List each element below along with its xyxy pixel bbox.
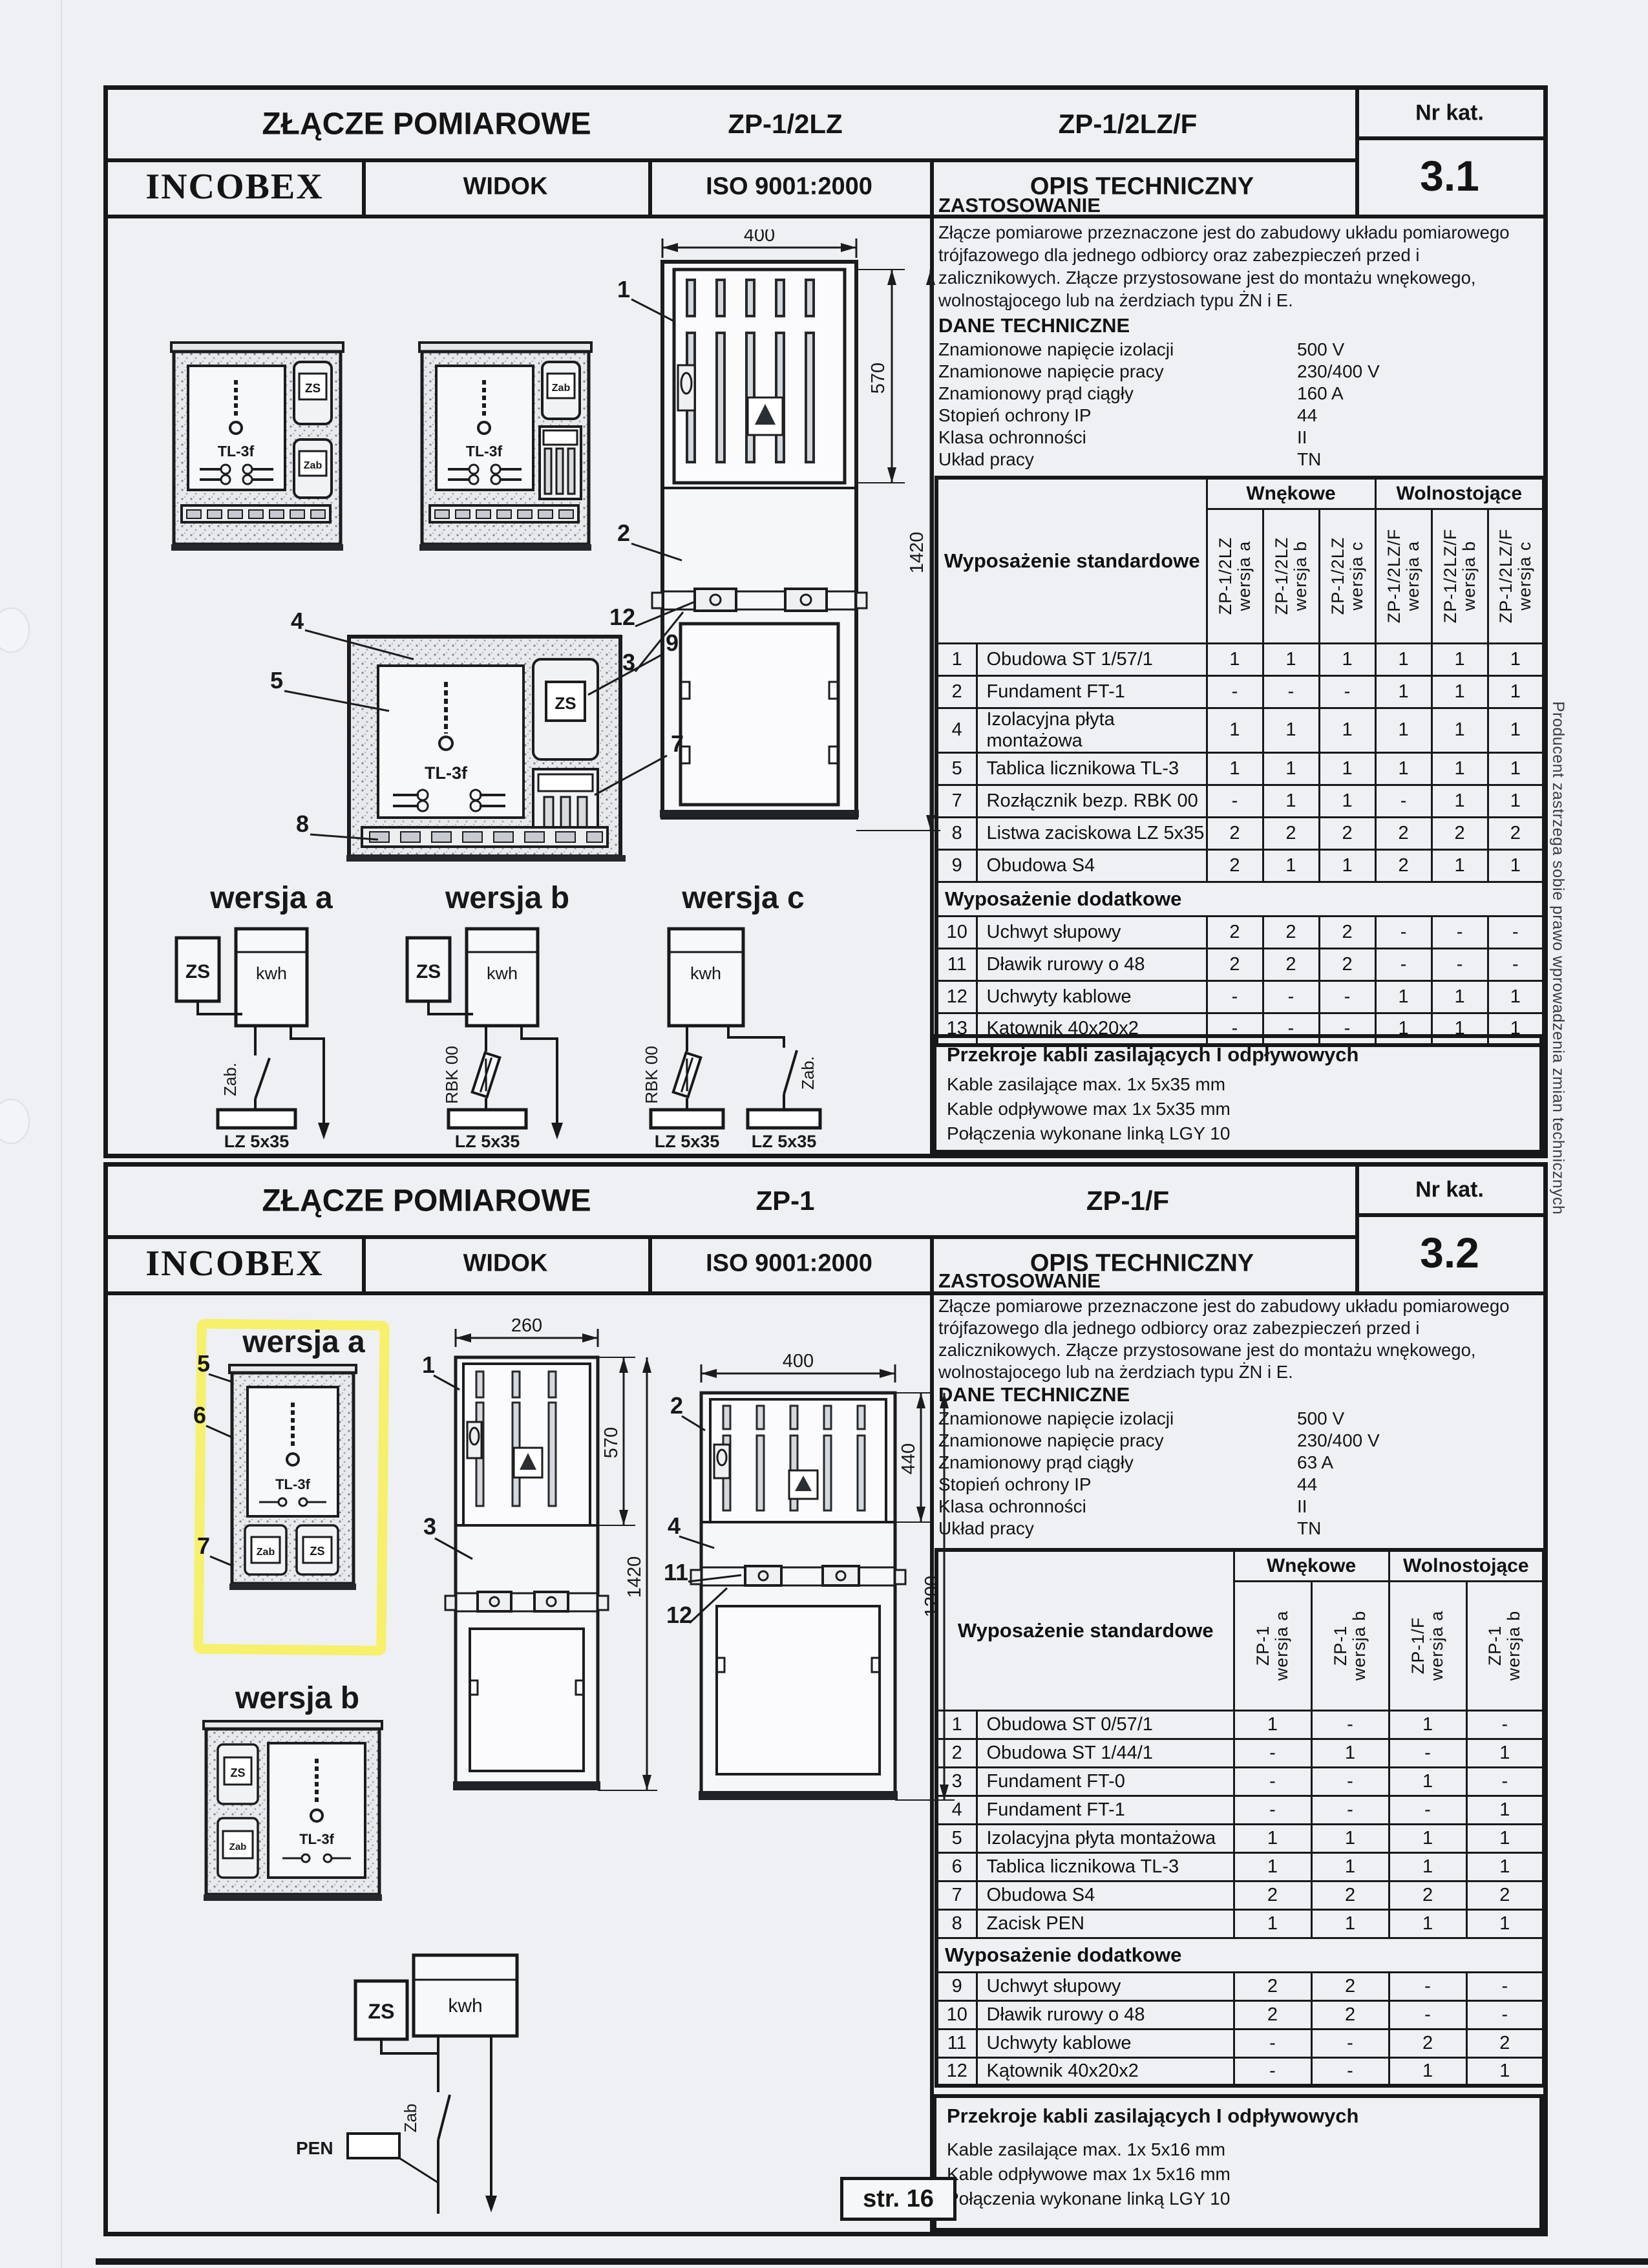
table-cell: 1 [1431, 643, 1488, 675]
table-cell: 2 [1375, 817, 1431, 849]
table-cell: 44 [1297, 405, 1539, 427]
table-cell: 2 [1466, 1881, 1544, 1909]
table-cell: Układ pracy [938, 1518, 1297, 1540]
table-cell: 1 [1488, 675, 1544, 708]
table-cell: 1 [1431, 675, 1488, 708]
table-cell: 2 [1319, 916, 1375, 948]
table-cell: 1 [1207, 708, 1263, 752]
callout-12: 12 [666, 1602, 692, 1628]
table-cell: 1 [1466, 2057, 1544, 2086]
callout-2: 2 [670, 1392, 683, 1419]
table-cell: Obudowa ST 1/44/1 [977, 1739, 1234, 1767]
table-cell: Izolacyjna płyta montażowa [977, 708, 1207, 752]
table-cell: Listwa zaciskowa LZ 5x35 [977, 817, 1207, 849]
table-cell: 9 [936, 1972, 977, 2000]
table-cell: - [1319, 980, 1375, 1013]
table-row: Znamionowe napięcie izolacji500 V [938, 339, 1539, 361]
callout-3: 3 [423, 1513, 436, 1540]
callout-9: 9 [666, 630, 679, 656]
zs-label: ZS [416, 961, 441, 982]
table-row: 1Obudowa ST 0/57/11-1- [936, 1710, 1544, 1739]
zs-label: ZS [310, 1545, 324, 1558]
table-cell: Dławik rurowy o 48 [977, 948, 1207, 980]
table-cell: 2 [1207, 817, 1263, 849]
table-cell: 11 [936, 2029, 977, 2057]
bar-label: LZ 5x35 [224, 1132, 290, 1151]
tl3f-label: TL-3f [299, 1831, 334, 1847]
cables-line: Połączenia wykonane linką LGY 10 [947, 1123, 1230, 1144]
scan-crease [61, 0, 62, 2268]
table-cell: Fundament FT-1 [977, 1796, 1234, 1824]
schematic-zp1-32: kwh ZS Zab PEN [278, 1942, 562, 2233]
table-row: Układ pracyTN [938, 449, 1539, 471]
table-cell: 1 [1431, 752, 1488, 785]
model-zp12lzf: ZP-1/2LZ/F [1059, 109, 1198, 140]
device-label: RBK 00 [642, 1046, 661, 1104]
page-title-32: ZŁĄCZE POMIAROWE [262, 1183, 591, 1219]
col-header: ZP-1/2LZwersja c [1319, 509, 1375, 643]
schematic-wersja-a-31: wersja a ZS kwh Zab. LZ 5x35 [158, 876, 385, 1154]
table-cell: - [1311, 2029, 1389, 2057]
model-zp1f: ZP-1/F [1086, 1185, 1169, 1216]
cables-line: Kable zasilające max. 1x 5x16 mm [947, 2139, 1225, 2160]
table-cell: Znamionowe napięcie pracy [938, 1430, 1297, 1452]
zab-label: Zab [304, 460, 322, 471]
zs-label: ZS [305, 382, 321, 396]
table-cell: 1 [1207, 643, 1263, 675]
table-title-cell: Wyposażenie standardowe [936, 478, 1207, 643]
table-cell: 2 [1389, 2029, 1466, 2057]
table-cell: 2 [1311, 1972, 1389, 2000]
dim-440: 440 [898, 1443, 919, 1474]
table-cell: 1 [1263, 752, 1319, 785]
tl3f-label: TL-3f [275, 1476, 310, 1492]
table-cell: 1 [1389, 1909, 1466, 1938]
cables-line: Kable odpływowe max 1x 5x35 mm [947, 1099, 1231, 1119]
table-cell: 1 [1311, 1852, 1389, 1881]
page-number: str. 16 [863, 2185, 934, 2213]
table-cell: TN [1297, 449, 1539, 471]
table-row: Znamionowe napięcie pracy230/400 V [938, 361, 1539, 383]
wersja-b-cabinet-32: wersja b ZS Zab TL-3f [194, 1677, 401, 1913]
table-cell: - [1375, 948, 1431, 980]
table-row: 9Uchwyt słupowy22-- [936, 1972, 1544, 2000]
punch-hole [0, 1099, 30, 1144]
table-cell: - [1488, 916, 1544, 948]
group-header-row: Wyposażenie standardowe Wnękowe Wolnosto… [936, 478, 1544, 509]
table-cell: Izolacyjna płyta montażowa [977, 1824, 1234, 1852]
table-cell: 7 [936, 1881, 977, 1909]
table-cell: 1 [1234, 1852, 1311, 1881]
equipment-table-32: Wyposażenie standardowe Wnękowe Wolnosto… [935, 1548, 1546, 2088]
table-row: 7Obudowa S42222 [936, 1881, 1544, 1909]
table-row: 9Obudowa S4211211 [936, 849, 1544, 882]
zab-label: Zab [229, 1841, 247, 1852]
table-cell: Uchwyt słupowy [977, 916, 1207, 948]
table-cell: Kątownik 40x20x2 [977, 2057, 1234, 2086]
table-cell: 2 [1319, 948, 1375, 980]
table-cell: 1 [1263, 643, 1319, 675]
table-row: 8Listwa zaciskowa LZ 5x35222222 [936, 817, 1544, 849]
dane-table-31: Znamionowe napięcie izolacji500 VZnamion… [938, 339, 1539, 471]
callout-7: 7 [197, 1532, 210, 1559]
table-cell: Rozłącznik bezp. RBK 00 [977, 785, 1207, 817]
table-row: 10Uchwyt słupowy222--- [936, 916, 1544, 948]
table-cell: 1 [1375, 752, 1431, 785]
punch-hole [0, 608, 30, 653]
table-cell: 12 [936, 980, 977, 1013]
table-cell: 1 [1319, 643, 1375, 675]
page-number-box: str. 16 [840, 2177, 956, 2221]
table-cell: - [1311, 1796, 1389, 1824]
extra-header-row: Wyposażenie dodatkowe [936, 1938, 1544, 1972]
table-cell: - [1319, 675, 1375, 708]
iso-label-32: ISO 9001:2000 [706, 1250, 872, 1278]
kwh-label: kwh [256, 964, 287, 983]
table-cell: Obudowa S4 [977, 1881, 1234, 1909]
dimensioned-cabinet-260: 260 570 1420 1 3 [410, 1319, 669, 1829]
table-cell: 1 [1488, 643, 1544, 675]
dim-1420: 1420 [624, 1556, 645, 1598]
tl3f-label: TL-3f [218, 443, 255, 460]
table-row: 2Fundament FT-1---111 [936, 675, 1544, 708]
table-cell: 2 [1319, 817, 1375, 849]
table-cell: 2 [1234, 1881, 1311, 1909]
table-cell: 2 [1311, 1881, 1389, 1909]
table-row: 5Tablica licznikowa TL-3111111 [936, 752, 1544, 785]
extra-header-row: Wyposażenie dodatkowe [936, 882, 1544, 916]
table-row: Znamionowe napięcie izolacji500 V [938, 1408, 1539, 1430]
table-cell: 1 [1319, 752, 1375, 785]
zastosowanie-title-32: ZASTOSOWANIE [938, 1269, 1101, 1293]
callout-7: 7 [671, 730, 684, 757]
table-cell: - [1311, 1710, 1389, 1739]
table-cell: 1 [1207, 752, 1263, 785]
table-cell: 1 [1234, 1824, 1311, 1852]
dim-1200: 1200 [922, 1576, 942, 1618]
table-row: 3Fundament FT-0--1- [936, 1767, 1544, 1796]
zs-label: ZS [555, 694, 576, 713]
dim-1420: 1420 [907, 532, 927, 574]
brand-logo-32: INCOBEX [145, 1243, 323, 1284]
device-label: Zab. [220, 1063, 240, 1096]
table-cell: Uchwyty kablowe [977, 980, 1207, 1013]
table-cell: 1 [1263, 849, 1319, 882]
table-cell: 1 [1375, 675, 1431, 708]
bar-label: LZ 5x35 [455, 1132, 520, 1151]
table-cell: 2 [1431, 817, 1488, 849]
table-cell: 1 [1375, 643, 1431, 675]
table-cell: - [1234, 2057, 1311, 2086]
zs-label: ZS [185, 961, 210, 982]
dane-title-32: DANE TECHNICZNE [938, 1383, 1130, 1406]
table-cell: Tablica licznikowa TL-3 [977, 752, 1207, 785]
col-header: ZP-1/2LZ/Fwersja b [1431, 509, 1488, 643]
table-cell: Obudowa S4 [977, 849, 1207, 882]
table-cell: - [1431, 948, 1488, 980]
producer-margin-note: Producent zastrzega sobie prawo wprowadz… [1548, 701, 1567, 1554]
device-label: Zab [401, 2104, 420, 2133]
table-row: 10Dławik rurowy o 4822-- [936, 2000, 1544, 2029]
table-cell: 10 [936, 2000, 977, 2029]
table-cell: 2 [1263, 817, 1319, 849]
dim-570: 570 [601, 1427, 622, 1458]
page-title-31: ZŁĄCZE POMIAROWE [262, 107, 591, 142]
col-header: ZP-1wersja a [1234, 1581, 1311, 1710]
col-header: ZP-1/Fwersja a [1389, 1581, 1466, 1710]
callout-8: 8 [296, 811, 309, 837]
table-cell: - [1207, 785, 1263, 817]
table-row: Stopień ochrony IP44 [938, 1474, 1539, 1496]
table-cell: 1 [1375, 980, 1431, 1013]
table-cell: - [1389, 1972, 1466, 2000]
zastosowanie-text-32: Złącze pomiarowe przeznaczone jest do za… [938, 1295, 1536, 1383]
table-cell: 500 V [1297, 1408, 1539, 1430]
group-wolnostojace: Wolnostojące [1375, 478, 1544, 509]
dane-table-32: Znamionowe napięcie izolacji500 VZnamion… [938, 1408, 1539, 1540]
table-cell: 1 [1375, 708, 1431, 752]
table-cell: - [1389, 2000, 1466, 2029]
table-cell: - [1431, 916, 1488, 948]
table-cell: Znamionowe napięcie izolacji [938, 1408, 1297, 1430]
table-cell: 1 [1466, 1796, 1544, 1824]
table-cell: Dławik rurowy o 48 [977, 2000, 1234, 2029]
table-cell: - [1263, 980, 1319, 1013]
table-row: 8Zacisk PEN1111 [936, 1909, 1544, 1938]
cables-line: Połączenia wykonane linką LGY 10 [947, 2189, 1230, 2209]
brand-logo-31: INCOBEX [145, 166, 323, 207]
table-cell: 1 [1466, 1852, 1544, 1881]
callout-2: 2 [617, 520, 630, 546]
table-cell: 1 [1263, 708, 1319, 752]
table-cell: Znamionowy prąd ciągły [938, 1452, 1297, 1474]
table-cell: 230/400 V [1297, 1430, 1539, 1452]
table-cell: 11 [936, 948, 977, 980]
nr-kat-value-31: 3.1 [1420, 151, 1479, 200]
table-cell: 1 [1319, 785, 1375, 817]
table-cell: Układ pracy [938, 449, 1297, 471]
table-cell: - [1375, 785, 1431, 817]
table-cell: - [1234, 2029, 1311, 2057]
table-cell: 1 [1389, 1824, 1466, 1852]
table-cell: 1 [1466, 1824, 1544, 1852]
table-row: 6Tablica licznikowa TL-31111 [936, 1852, 1544, 1881]
table-cell: 1 [1488, 785, 1544, 817]
table-cell: 8 [936, 1909, 977, 1938]
table-cell: - [1488, 948, 1544, 980]
col-header: ZP-1/2LZ/Fwersja c [1488, 509, 1544, 643]
table-cell: 1 [1431, 785, 1488, 817]
table-row: 5Izolacyjna płyta montażowa1111 [936, 1824, 1544, 1852]
nr-kat-label-32: Nr kat. [1415, 1178, 1484, 1203]
col-header: ZP-1wersja b [1466, 1581, 1544, 1710]
callout-1: 1 [617, 276, 630, 302]
table-cell: 63 A [1297, 1452, 1539, 1474]
equipment-table-31: Wyposażenie standardowe Wnękowe Wolnosto… [935, 476, 1546, 1047]
schematic-wersja-c-31: wersja c kwh RBK 00 Zab. LZ 5x35 LZ 5x35 [630, 876, 856, 1154]
table-cell: 1 [1234, 1909, 1311, 1938]
table-cell: 1 [1234, 1710, 1311, 1739]
col-header: ZP-1wersja b [1311, 1581, 1389, 1710]
version-label: wersja c [681, 881, 804, 915]
group-wolnostojace: Wolnostojące [1389, 1550, 1544, 1581]
dim-400: 400 [744, 229, 775, 246]
group-wnekowe: Wnękowe [1207, 478, 1375, 509]
table-cell: Stopień ochrony IP [938, 1474, 1297, 1496]
table-cell: 2 [1263, 948, 1319, 980]
table-cell: 1 [1466, 1909, 1544, 1938]
table-cell: - [1311, 1767, 1389, 1796]
table-cell: 1 [1488, 849, 1544, 882]
table-row: Znamionowy prąd ciągły160 A [938, 383, 1539, 405]
table-row: 12Uchwyty kablowe---111 [936, 980, 1544, 1013]
table-cell: Uchwyt słupowy [977, 1972, 1234, 2000]
table-cell: - [1234, 1767, 1311, 1796]
zab-label: Zab [257, 1547, 275, 1558]
group-wnekowe: Wnękowe [1234, 1550, 1389, 1581]
table-cell: 2 [1234, 2000, 1311, 2029]
table-cell: Znamionowe napięcie izolacji [938, 339, 1297, 361]
open-cabinet-31: TL-3f ZS 4 5 9 7 8 [252, 598, 711, 885]
device-label: Zab. [798, 1056, 818, 1090]
table-cell: 1 [1389, 1767, 1466, 1796]
kwh-label: kwh [690, 964, 721, 983]
cables-line: Kable odpływowe max 1x 5x16 mm [947, 2164, 1231, 2185]
col-header: ZP-1/2LZwersja b [1263, 509, 1319, 643]
table-cell: - [1466, 1767, 1544, 1796]
table-cell: Obudowa ST 1/57/1 [977, 643, 1207, 675]
bar-label: LZ 5x35 [752, 1132, 817, 1151]
table-cell: 1 [1389, 1852, 1466, 1881]
table-row: 1Obudowa ST 1/57/1111111 [936, 643, 1544, 675]
kwh-label: kwh [487, 964, 518, 983]
model-zp12lz: ZP-1/2LZ [728, 109, 842, 140]
table-row: 11Dławik rurowy o 48222--- [936, 948, 1544, 980]
table-row: 2Obudowa ST 1/44/1-1-1 [936, 1739, 1544, 1767]
table-cell: 2 [1488, 817, 1544, 849]
table-cell: II [1297, 427, 1539, 449]
table-cell: - [1311, 2057, 1389, 2086]
table-row: 11Uchwyty kablowe--22 [936, 2029, 1544, 2057]
tl3f-label: TL-3f [425, 763, 468, 783]
table-cell: TN [1297, 1518, 1539, 1540]
table-row: 12Kątownik 40x20x2--11 [936, 2057, 1544, 2086]
zs-label: ZS [368, 2000, 395, 2023]
table-title-cell: Wyposażenie standardowe [936, 1550, 1234, 1710]
iso-label-31: ISO 9001:2000 [706, 173, 872, 201]
table-row: Układ pracyTN [938, 1518, 1539, 1540]
callout-11: 11 [664, 1559, 688, 1585]
table-row: 4Izolacyjna płyta montażowa111111 [936, 708, 1544, 752]
table-cell: 2 [1234, 1972, 1311, 2000]
dim-400: 400 [783, 1354, 814, 1372]
col-header: ZP-1/2LZwersja a [1207, 509, 1263, 643]
device-label: RBK 00 [442, 1046, 461, 1104]
callout-5: 5 [270, 667, 283, 694]
table-cell: 1 [1311, 1824, 1389, 1852]
table-cell: - [1466, 1972, 1544, 2000]
pen-label: PEN [296, 2138, 333, 2158]
zab-label: Zab [552, 383, 571, 394]
table-cell: 1 [1389, 2057, 1466, 2086]
zastosowanie-text-31: Złącze pomiarowe przeznaczone jest do za… [938, 221, 1536, 312]
table-cell: Znamionowe napięcie pracy [938, 361, 1297, 383]
table-cell: Klasa ochronności [938, 427, 1297, 449]
table-cell: Uchwyty kablowe [977, 2029, 1234, 2057]
table-row: Klasa ochronnościII [938, 1496, 1539, 1518]
table-cell: - [1466, 1710, 1544, 1739]
table-row: Znamionowe napięcie pracy230/400 V [938, 1430, 1539, 1452]
nr-kat-value-32: 3.2 [1420, 1228, 1479, 1277]
table-cell: 1 [1488, 980, 1544, 1013]
table-cell: - [1207, 980, 1263, 1013]
cables-title-31: Przekroje kabli zasilających I odpływowy… [947, 1043, 1358, 1066]
bar-label: LZ 5x35 [655, 1132, 720, 1151]
col-header: ZP-1/2LZ/Fwersja a [1375, 509, 1431, 643]
table-cell: - [1375, 916, 1431, 948]
table-cell: 44 [1297, 1474, 1539, 1496]
table-cell: Znamionowy prąd ciągły [938, 383, 1297, 405]
zastosowanie-title-31: ZASTOSOWANIE [938, 194, 1101, 217]
table-row: 4Fundament FT-1---1 [936, 1796, 1544, 1824]
cables-line: Kable zasilające max. 1x 5x35 mm [947, 1074, 1225, 1095]
table-cell: 2 [1375, 849, 1431, 882]
zs-label: ZS [230, 1766, 245, 1779]
table-cell: 1 [1389, 1710, 1466, 1739]
schematic-wersja-b-31: wersja b ZS kwh RBK 00 LZ 5x35 [394, 876, 620, 1154]
callout-6: 6 [193, 1402, 206, 1428]
table-cell: 500 V [1297, 339, 1539, 361]
dim-570: 570 [868, 363, 889, 394]
dimensioned-cabinet-400: 400 440 1200 2 4 11 12 [662, 1354, 960, 1839]
table-cell: - [1466, 2000, 1544, 2029]
view-label-32: WIDOK [463, 1250, 548, 1278]
callout-1: 1 [422, 1351, 435, 1378]
table-cell: 2 [1311, 2000, 1389, 2029]
table-row: Stopień ochrony IP44 [938, 405, 1539, 427]
table-cell: 2 [1263, 916, 1319, 948]
cabinet-front-views-31: TL-3f ZS Zab TL-3f Zab [165, 336, 604, 588]
tl3f-label: TL-3f [466, 443, 503, 460]
dane-title-31: DANE TECHNICZNE [938, 314, 1130, 337]
table-cell: 2 [1389, 1881, 1466, 1909]
table-cell: 2 [1207, 916, 1263, 948]
table-row: Klasa ochronnościII [938, 427, 1539, 449]
callout-4: 4 [668, 1512, 681, 1539]
callout-5: 5 [197, 1350, 210, 1377]
table-cell: - [1234, 1796, 1311, 1824]
table-cell: - [1263, 675, 1319, 708]
wersja-a-cabinet-32: wersja a 5 6 7 TL-3f Zab ZS [184, 1319, 397, 1671]
table-cell: 2 [1207, 849, 1263, 882]
scan-bottom-edge [96, 2258, 1648, 2265]
view-label-31: WIDOK [463, 173, 548, 201]
dim-260: 260 [511, 1319, 542, 1336]
table-cell: 1 [1319, 708, 1375, 752]
table-cell: 230/400 V [1297, 361, 1539, 383]
table-cell: Fundament FT-1 [977, 675, 1207, 708]
version-label: wersja a [242, 1325, 365, 1359]
table-cell: 1 [1319, 849, 1375, 882]
table-row: 7Rozłącznik bezp. RBK 00-11-11 [936, 785, 1544, 817]
table-cell: - [1207, 675, 1263, 708]
table-cell: Zacisk PEN [977, 1909, 1234, 1938]
cables-title-32: Przekroje kabli zasilających I odpływowy… [947, 2104, 1358, 2128]
callout-4: 4 [291, 608, 304, 634]
table-cell: 1 [1431, 980, 1488, 1013]
version-label: wersja b [445, 881, 569, 915]
table-cell: 1 [1263, 785, 1319, 817]
